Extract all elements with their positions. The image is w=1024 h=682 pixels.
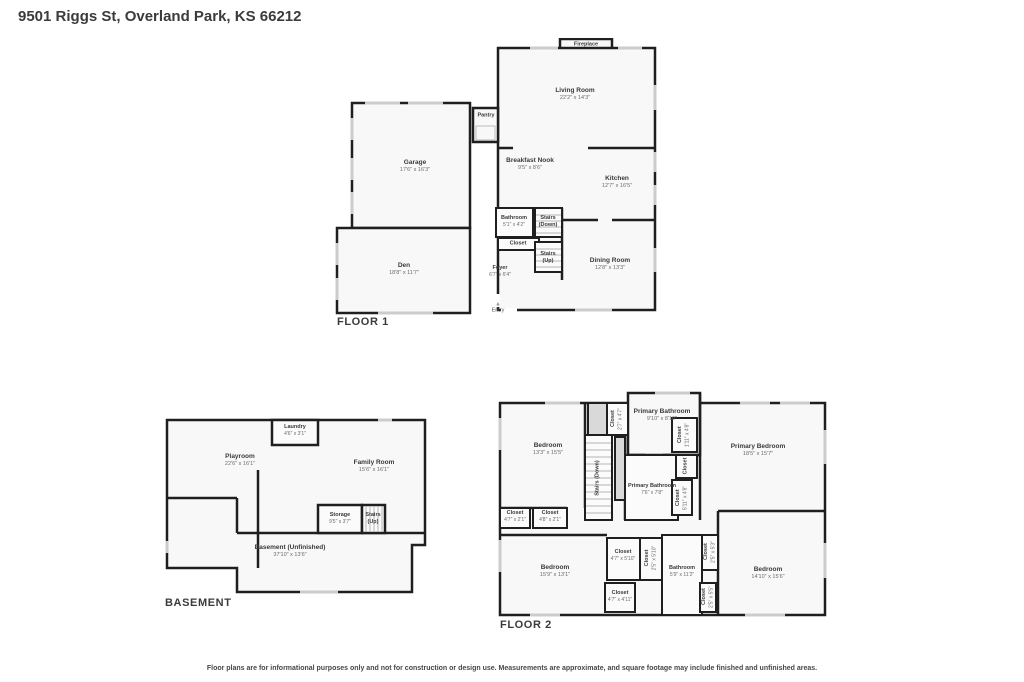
floor2-plan: Bedroom 13'3" x 15'5" Closet 2'7" x 4'7"… — [495, 388, 835, 638]
room-label-family-room: Family Room 15'6" x 16'1" — [354, 459, 395, 475]
basement-walls — [160, 412, 440, 617]
floor-plan-page: 9501 Riggs St, Overland Park, KS 66212 — [0, 0, 1024, 682]
room-label-breakfast-nook: Breakfast Nook 9'5" x 8'6" — [506, 157, 554, 173]
room-label-pantry: Pantry — [477, 112, 494, 119]
room-label-primary-bedroom: Primary Bedroom 18'5" x 15'7" — [731, 443, 786, 459]
room-label-closet-b3: Closet 2'5" x 5'3" — [703, 541, 717, 563]
basement-label: BASEMENT — [165, 597, 232, 609]
room-label-closet-hall-1: Closet 4'7" x 2'1" — [504, 510, 526, 524]
room-label-bathroom: Bathroom 5'9" x 11'2" — [669, 565, 695, 579]
room-label-stairs-down: Stairs (Down) — [539, 215, 558, 229]
room-label-primary-bathroom-mid: Primary Bathroom 7'6" x 7'8" — [628, 483, 676, 497]
room-label-closet-hall-2: Closet 4'8" x 2'1" — [539, 510, 561, 524]
basement-plan: Laundry 4'6" x 3'1" Playroom 22'6" x 16'… — [160, 412, 440, 617]
room-label-dining-room: Dining Room 12'8" x 13'3" — [590, 257, 630, 273]
room-label-garage: Garage 17'6" x 16'3" — [400, 159, 430, 175]
room-label-bathroom: Bathroom 5'1" x 4'2" — [501, 215, 527, 229]
room-label-living-room: Living Room 22'2" x 14'3" — [555, 87, 594, 103]
room-label-stairs-up: Stairs (Up) — [365, 512, 380, 526]
room-label-primary-bathroom-top: Primary Bathroom 9'10" x 8'10" — [634, 408, 691, 424]
room-label-bedroom-bottom-right: Bedroom 14'10" x 15'6" — [751, 566, 784, 582]
disclaimer-text: Floor plans are for informational purpos… — [0, 665, 1024, 672]
room-label-den: Den 18'8" x 11'7" — [389, 262, 419, 278]
room-label-closet-primary-1: Closet 1'11" x 4'8" — [677, 423, 691, 447]
room-label-storage: Storage 9'5" x 3'7" — [329, 512, 351, 526]
room-label-entry: ▲ Entry — [492, 301, 505, 314]
room-label-closet-b1: Closet 4'7" x 5'10" — [611, 549, 636, 563]
floor1-plan: Fireplace Living Room 22'2" x 14'3" Gara… — [330, 38, 660, 338]
room-label-closet-b5: Closet 4'7" x 4'11" — [608, 590, 632, 604]
room-label-closet-b4: Closet 2'5" x 5'5" — [701, 586, 715, 608]
room-label-bedroom-top-left: Bedroom 13'3" x 15'5" — [533, 442, 563, 458]
room-label-closet-mid: Closet — [682, 458, 689, 475]
room-label-bedroom-bottom-left: Bedroom 15'9" x 13'1" — [540, 564, 570, 580]
room-label-closet-b2: Closet 2'5" x 5'10" — [644, 546, 658, 571]
room-label-closet-by-stairs: Closet 2'7" x 4'7" — [610, 408, 624, 430]
room-label-stairs-up: Stairs (Up) — [540, 251, 555, 265]
room-label-laundry: Laundry 4'6" x 3'1" — [284, 424, 306, 438]
room-label-closet: Closet — [510, 240, 527, 247]
room-label-fireplace: Fireplace — [574, 41, 598, 48]
room-label-kitchen: Kitchen 12'7" x 16'5" — [602, 175, 632, 191]
room-label-basement-unfinished: Basement (Unfinished) 37'10" x 13'6" — [255, 544, 326, 560]
floor2-label: FLOOR 2 — [500, 619, 552, 631]
floor1-label: FLOOR 1 — [337, 316, 389, 328]
page-title: 9501 Riggs St, Overland Park, KS 66212 — [18, 8, 301, 25]
room-label-stairs-down: Stairs (Down) — [594, 460, 601, 495]
room-label-closet-primary-2: Closet 5'11" x 4'8" — [675, 486, 689, 510]
room-label-playroom: Playroom 22'6" x 16'1" — [225, 453, 255, 469]
room-label-foyer: Foyer 6'7" x 6'4" — [489, 265, 511, 279]
